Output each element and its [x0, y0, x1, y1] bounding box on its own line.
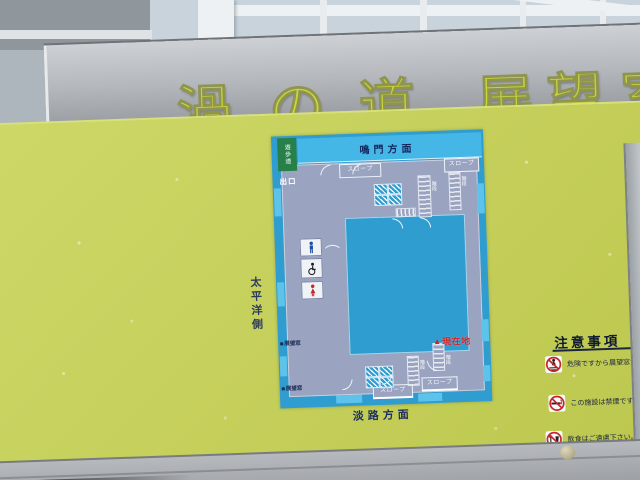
window-strip [418, 393, 442, 402]
label-stairs: 階段 [431, 181, 436, 191]
mens-toilet-icon [305, 241, 316, 254]
label-stairs: 階段 [445, 355, 450, 365]
label-observation-window: 展望窓 [282, 384, 303, 393]
window-strip [336, 395, 362, 404]
notice-item: この施設は禁煙です。 [548, 392, 640, 412]
label-exit: 出口 [279, 176, 296, 188]
label-slope: スロープ [421, 376, 457, 391]
stairs-symbol [407, 356, 420, 386]
window-strip [477, 183, 485, 213]
label-awaji-direction: 淡路方面 [352, 406, 413, 424]
glass-floor-panel-icon [388, 183, 402, 194]
current-location-badge: ▲ 現在地 [433, 334, 471, 348]
glass-floor-panel-icon [388, 194, 402, 205]
information-sign: 渦 の 道 展 望 室 太平洋側 瀬戸内海側 淡路方面 鳴門方面 [0, 0, 640, 480]
current-location-marker: ▲ [433, 337, 441, 346]
notice-item: 危険ですから展望窓からのり出さないで下さい。 [545, 350, 640, 373]
womens-toilet-icon [307, 284, 318, 297]
glass-floor-panel-icon [365, 377, 379, 388]
label-observation-window: 展望窓 [280, 339, 301, 348]
label-stairs: 階段 [460, 176, 465, 186]
window-strip [280, 356, 288, 376]
notice-text: 危険ですから展望窓からのり出さないで下さい。 [567, 354, 640, 369]
label-pacific-side: 太平洋側 [247, 276, 265, 333]
floor-plan-map: 鳴門方面 遊歩道 出口 スロープ スロープ スロープ スロープ 階段 階段 [271, 129, 492, 408]
label-promenade: 遊歩道 [282, 144, 292, 165]
window-strip [481, 319, 489, 341]
current-location-label: 現在地 [442, 334, 471, 348]
label-naruto-direction: 鳴門方面 [359, 139, 415, 156]
window-strip [274, 188, 282, 216]
label-stairs: 階段 [419, 359, 424, 369]
glass-floor-panel-icon [374, 195, 388, 206]
glass-floor-panel-icon [365, 366, 379, 377]
glass-floor-panel-icon [374, 184, 388, 195]
label-slope: スロープ [444, 157, 479, 172]
no-smoking-icon [548, 395, 566, 413]
steps-symbol [396, 208, 416, 218]
wheelchair-icon [306, 262, 317, 275]
map-promenade-box: 遊歩道 [277, 138, 297, 172]
no-leaning-out-icon [545, 356, 563, 374]
notice-text: この施設は禁煙です。 [570, 395, 640, 407]
sign-photo-scene: 渦 の 道 展 望 室 太平洋側 瀬戸内海側 淡路方面 鳴門方面 [0, 0, 640, 480]
womens-restroom [301, 281, 324, 300]
mens-restroom [300, 238, 323, 257]
bolt-knob [614, 457, 627, 469]
window-strip [277, 282, 285, 306]
window-strip [483, 365, 491, 381]
map-poster: 太平洋側 瀬戸内海側 淡路方面 鳴門方面 遊歩道 出口 スロープ スロープ スロ… [0, 98, 640, 464]
accessible-restroom [300, 258, 323, 279]
